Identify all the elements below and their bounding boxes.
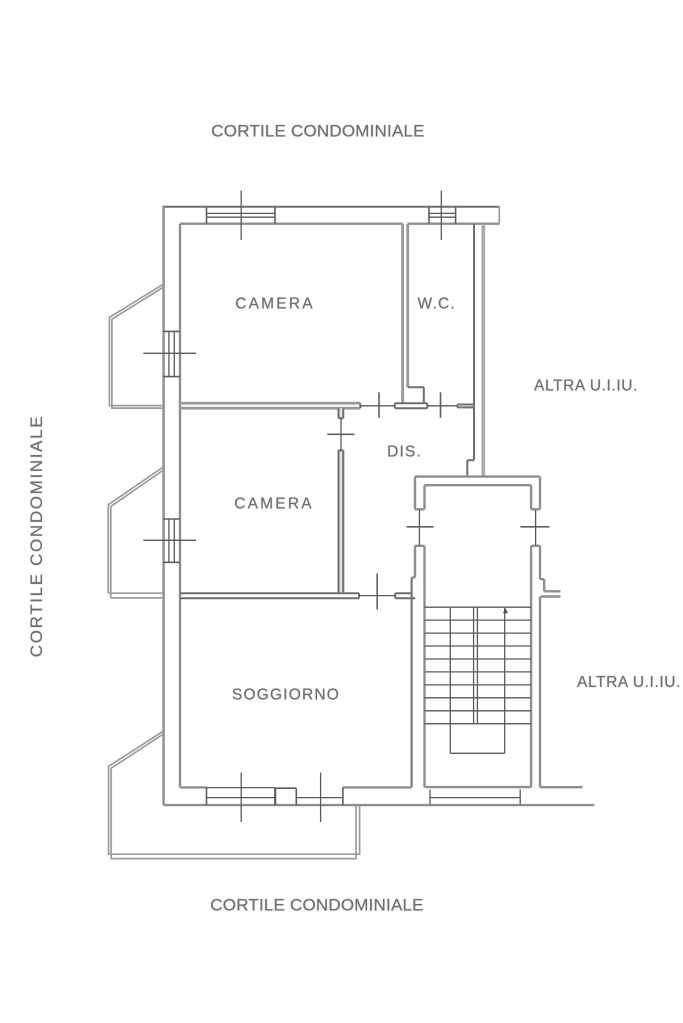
svg-text:CAMERA: CAMERA bbox=[235, 295, 315, 312]
svg-text:CORTILE CONDOMINIALE: CORTILE CONDOMINIALE bbox=[27, 415, 46, 657]
svg-text:CORTILE CONDOMINIALE: CORTILE CONDOMINIALE bbox=[210, 896, 423, 915]
svg-text:DIS.: DIS. bbox=[387, 444, 422, 461]
svg-text:ALTRA U.I.IU.: ALTRA U.I.IU. bbox=[577, 674, 681, 691]
svg-text:CAMERA: CAMERA bbox=[234, 496, 314, 513]
svg-text:W.C.: W.C. bbox=[418, 296, 456, 313]
svg-text:SOGGIORNO: SOGGIORNO bbox=[232, 687, 340, 704]
svg-text:ALTRA U.I.IU.: ALTRA U.I.IU. bbox=[534, 378, 638, 395]
svg-text:CORTILE CONDOMINIALE: CORTILE CONDOMINIALE bbox=[211, 122, 424, 141]
